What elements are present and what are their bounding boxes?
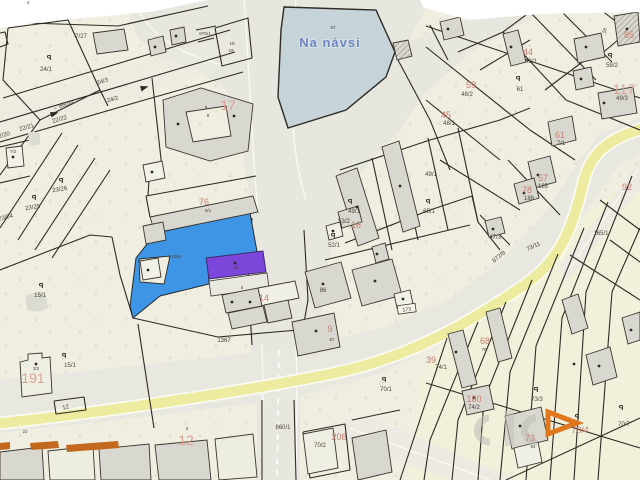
- building-dot: [573, 363, 576, 366]
- parcel-number: 2: [186, 426, 189, 431]
- building-dot: [147, 269, 150, 272]
- building-dot: [580, 78, 583, 81]
- house-number: 16: [351, 220, 361, 230]
- parcel-number: 87: [329, 337, 335, 342]
- building-dot: [322, 283, 325, 286]
- parcel-number: 24/1: [40, 67, 52, 73]
- house-number: 92: [622, 182, 632, 192]
- house-number: 17: [220, 97, 236, 113]
- building-dot: [332, 230, 335, 233]
- building-dot: [376, 253, 379, 256]
- parcel-number: 9: [205, 105, 208, 110]
- building-dot: [231, 301, 234, 304]
- parcel-number: 70/2: [314, 443, 326, 449]
- parcel-number: 74/2: [468, 405, 480, 411]
- landuse-p-symbol: P: [31, 195, 36, 202]
- parcel-number: 6/1: [205, 208, 212, 213]
- house-number: 45: [441, 110, 451, 120]
- parcel-number: 8: [207, 113, 210, 118]
- building-dot: [598, 365, 601, 368]
- landuse-p-symbol: P: [607, 53, 612, 60]
- building-dot: [402, 298, 405, 301]
- parcel-number: 18: [229, 41, 235, 46]
- landuse-p-symbol: P: [574, 414, 579, 421]
- house-number: 85: [624, 30, 634, 40]
- parcel-number: 48/1: [443, 121, 455, 127]
- parcel-number: 86: [320, 288, 327, 294]
- building-dot: [249, 301, 252, 304]
- house-number: 117: [613, 81, 636, 97]
- landuse-p-symbol: P: [58, 178, 63, 185]
- parcel-number: 74/1: [435, 365, 447, 371]
- building-dot: [455, 351, 458, 354]
- parcel-number: 76: [481, 347, 487, 352]
- parcel-number: 48/2: [461, 92, 473, 98]
- house-number: 68: [480, 336, 490, 346]
- landuse-p-symbol: P: [515, 76, 520, 83]
- parcel-number: 4: [27, 0, 30, 5]
- building-dot: [35, 363, 38, 366]
- house-number: 14: [259, 293, 269, 303]
- parcel-number: 43/1: [525, 59, 537, 65]
- chapel-building: [393, 40, 412, 60]
- landuse-p-symbol: P: [61, 353, 66, 360]
- house-number: 44: [523, 47, 533, 57]
- house-number: 208: [331, 432, 346, 442]
- landuse-p-symbol: P: [330, 233, 335, 240]
- landuse-p-symbol: P: [618, 405, 623, 412]
- building-dot: [492, 228, 495, 231]
- parcel-number: 70/1: [380, 387, 392, 393]
- cadastral-map-view[interactable]: c c: [0, 0, 640, 480]
- building-dot: [630, 329, 633, 332]
- parcel-number: 70/7: [618, 422, 630, 428]
- building-dot: [447, 28, 450, 31]
- building-dot: [154, 46, 157, 49]
- house-number: 70/4: [571, 425, 589, 435]
- parcel-number: 5: [241, 285, 244, 290]
- parcel-number: 52/1: [328, 243, 340, 249]
- parcel-number: 61: [517, 87, 524, 93]
- parcel-number: ←1364: [167, 254, 182, 259]
- parcel-number: 7/2: [10, 149, 17, 154]
- house-number: 12: [178, 432, 194, 448]
- pond-label: Na návsi: [299, 35, 360, 50]
- parcel-number: 19: [228, 48, 234, 53]
- building-dot: [399, 185, 402, 188]
- parcel-number: 49/1: [425, 172, 437, 178]
- parcel-number: 58/2: [606, 63, 618, 69]
- parcel-number: 49/3: [616, 96, 628, 102]
- parcel-number: 860/1: [275, 425, 291, 431]
- parcel-number: 173: [402, 306, 412, 313]
- house-number: 9: [327, 324, 332, 334]
- building-dot: [177, 123, 180, 126]
- parcel-number: 73/3: [531, 397, 543, 403]
- parcel-number: 53/2: [338, 219, 350, 225]
- house-number: 59: [466, 80, 476, 90]
- house-number: 39: [426, 355, 436, 365]
- landuse-p-symbol: P: [533, 387, 538, 394]
- gray-yard-blob-2: [28, 132, 40, 146]
- landuse-p-symbol: P: [425, 199, 430, 206]
- parcel-number: 165/1: [593, 231, 609, 237]
- parcel-number: 49/1: [348, 209, 360, 215]
- parcel-number: 22: [22, 429, 28, 434]
- landuse-p-symbol: P: [38, 283, 43, 290]
- building-dot: [233, 115, 236, 118]
- building-dot: [151, 171, 154, 174]
- parcel-number: 67: [330, 25, 336, 30]
- parcel-number: 84: [530, 444, 536, 449]
- building-dot: [315, 330, 318, 333]
- landuse-p-symbol: P: [347, 199, 352, 206]
- house-number: 61: [555, 130, 565, 140]
- house-number: 191: [21, 370, 45, 386]
- parcel-number: 188: [524, 196, 535, 202]
- building-dot: [519, 425, 522, 428]
- house-number: 78: [522, 185, 532, 195]
- parcel-number: 65/1: [423, 209, 435, 215]
- house-number: 180: [466, 394, 481, 404]
- parcel-number: 7/1: [557, 141, 566, 147]
- building-dot: [356, 206, 359, 209]
- parcel-number: 7/27: [75, 34, 87, 40]
- landuse-p-symbol: P: [381, 377, 386, 384]
- house-number: 73: [525, 433, 535, 443]
- parcel-number: 15/1: [34, 293, 46, 299]
- parcel-number: 185: [538, 184, 549, 190]
- building-dot: [603, 102, 606, 105]
- parcel-number: 875/1: [199, 31, 211, 36]
- building-dot: [374, 280, 377, 283]
- house-number: 57: [538, 173, 548, 183]
- parcel-number: 15/1: [64, 363, 76, 369]
- parcel-number: 47/3: [489, 235, 501, 241]
- building-dot: [12, 156, 15, 159]
- building-dot: [234, 262, 237, 265]
- landuse-p-symbol: P: [46, 55, 51, 62]
- parcel-number: 1367: [217, 338, 231, 344]
- building-dot: [175, 35, 178, 38]
- building-dot: [585, 46, 588, 49]
- house-number: 76: [199, 197, 209, 207]
- map-canvas[interactable]: c c: [0, 0, 640, 480]
- parcel-number: 60: [233, 265, 239, 270]
- building-dot: [510, 46, 513, 49]
